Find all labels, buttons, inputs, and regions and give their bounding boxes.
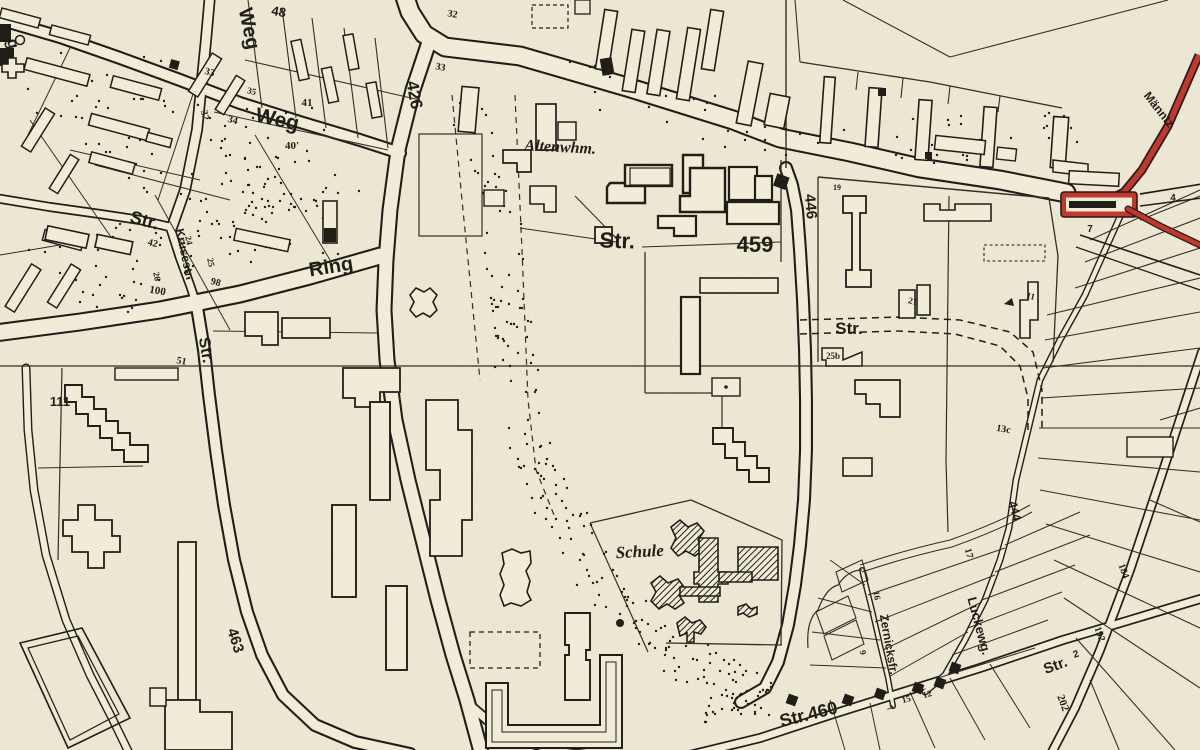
- svg-text:32: 32: [447, 8, 459, 21]
- svg-text:Schule: Schule: [615, 541, 665, 563]
- svg-text:459: 459: [737, 232, 774, 257]
- svg-text:111: 111: [50, 394, 70, 409]
- svg-text:7: 7: [1087, 224, 1093, 235]
- svg-text:4: 4: [1170, 193, 1176, 204]
- svg-text:48: 48: [270, 3, 287, 20]
- svg-text:33: 33: [435, 61, 447, 74]
- svg-text:51: 51: [176, 355, 188, 368]
- svg-text:25b: 25b: [826, 351, 840, 361]
- svg-text:Str.: Str.: [599, 227, 635, 253]
- svg-text:19: 19: [833, 183, 841, 192]
- svg-text:446: 446: [801, 193, 820, 219]
- svg-text:40': 40': [285, 140, 299, 152]
- svg-text:Str.: Str.: [835, 319, 862, 338]
- svg-text:41: 41: [302, 97, 313, 109]
